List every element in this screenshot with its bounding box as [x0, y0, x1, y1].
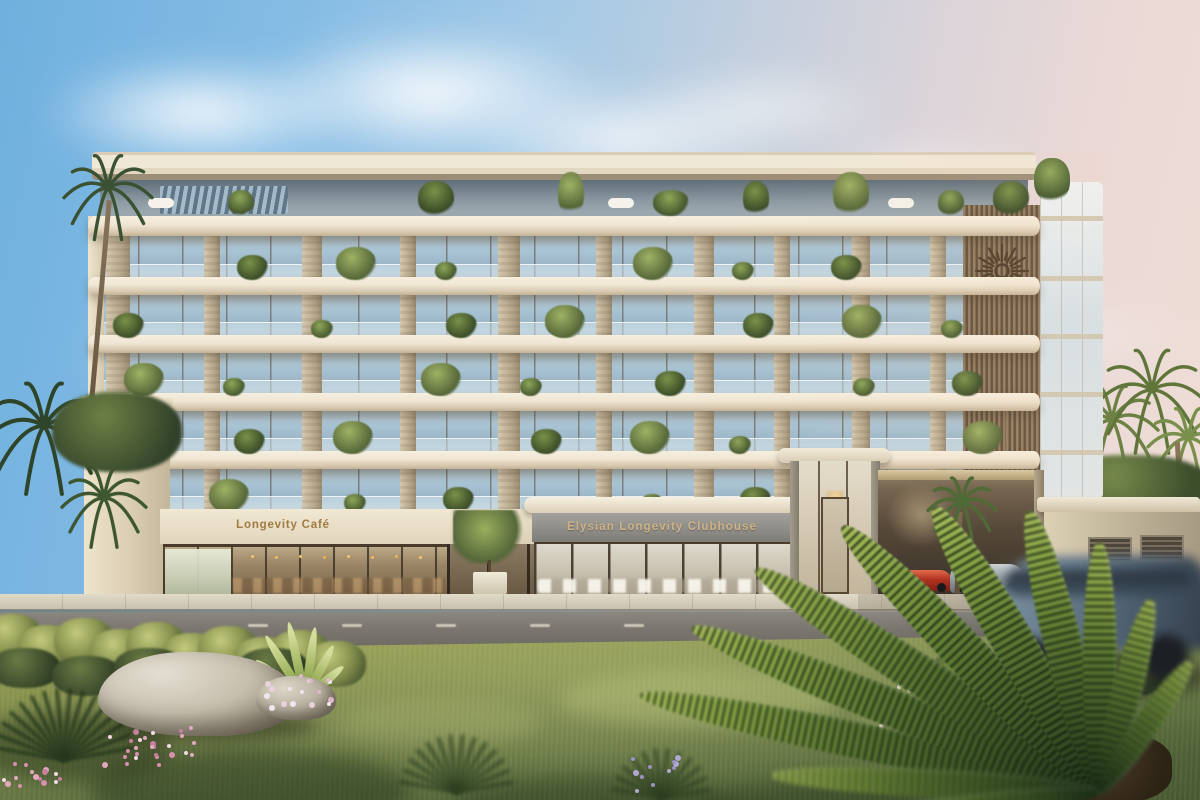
flower-cluster: [300, 690, 304, 694]
entrance-door: [821, 497, 849, 594]
mid-storefront: [447, 544, 534, 594]
clubhouse-canopy: [524, 497, 804, 513]
cafe-furniture: [233, 578, 445, 593]
palm-tree: [54, 134, 162, 258]
clubhouse-sofas: [538, 579, 786, 593]
center-line-dash: [436, 624, 456, 627]
clubhouse-fascia: Elysian Longevity Clubhouse: [532, 513, 792, 542]
hedge-bush-dark: [0, 648, 60, 688]
clubhouse-storefront: [534, 542, 790, 594]
entrance-lobby: [790, 461, 880, 594]
center-line-dash: [248, 624, 268, 627]
boulder-left-small: [256, 676, 336, 720]
flower-cluster: [150, 745, 154, 749]
cafe-fascia: Longevity Café: [160, 509, 450, 544]
center-line-dash: [530, 624, 550, 627]
roof-corner-tree: [1034, 158, 1070, 202]
flower-cluster: [640, 775, 644, 779]
center-line-dash: [624, 624, 644, 627]
car-wheel: [937, 583, 946, 592]
scene: Longevity Café Elysian Longevity Clubhou…: [0, 0, 1200, 800]
cafe-display-counter: [165, 549, 231, 594]
cafe-storefront: [163, 544, 447, 594]
center-line-dash: [342, 624, 362, 627]
annex-roof-slab: [1037, 497, 1200, 512]
cafe-sign-text: Longevity Café: [160, 519, 406, 531]
wall-hedge: [52, 392, 182, 472]
clubhouse-sign-text: Elysian Longevity Clubhouse: [532, 521, 792, 533]
pendant-lights: [251, 555, 254, 558]
planter-tree: [453, 510, 523, 564]
lobby-pier-left: [790, 461, 799, 594]
flower-cluster: [30, 770, 34, 774]
white-planter: [473, 572, 507, 594]
